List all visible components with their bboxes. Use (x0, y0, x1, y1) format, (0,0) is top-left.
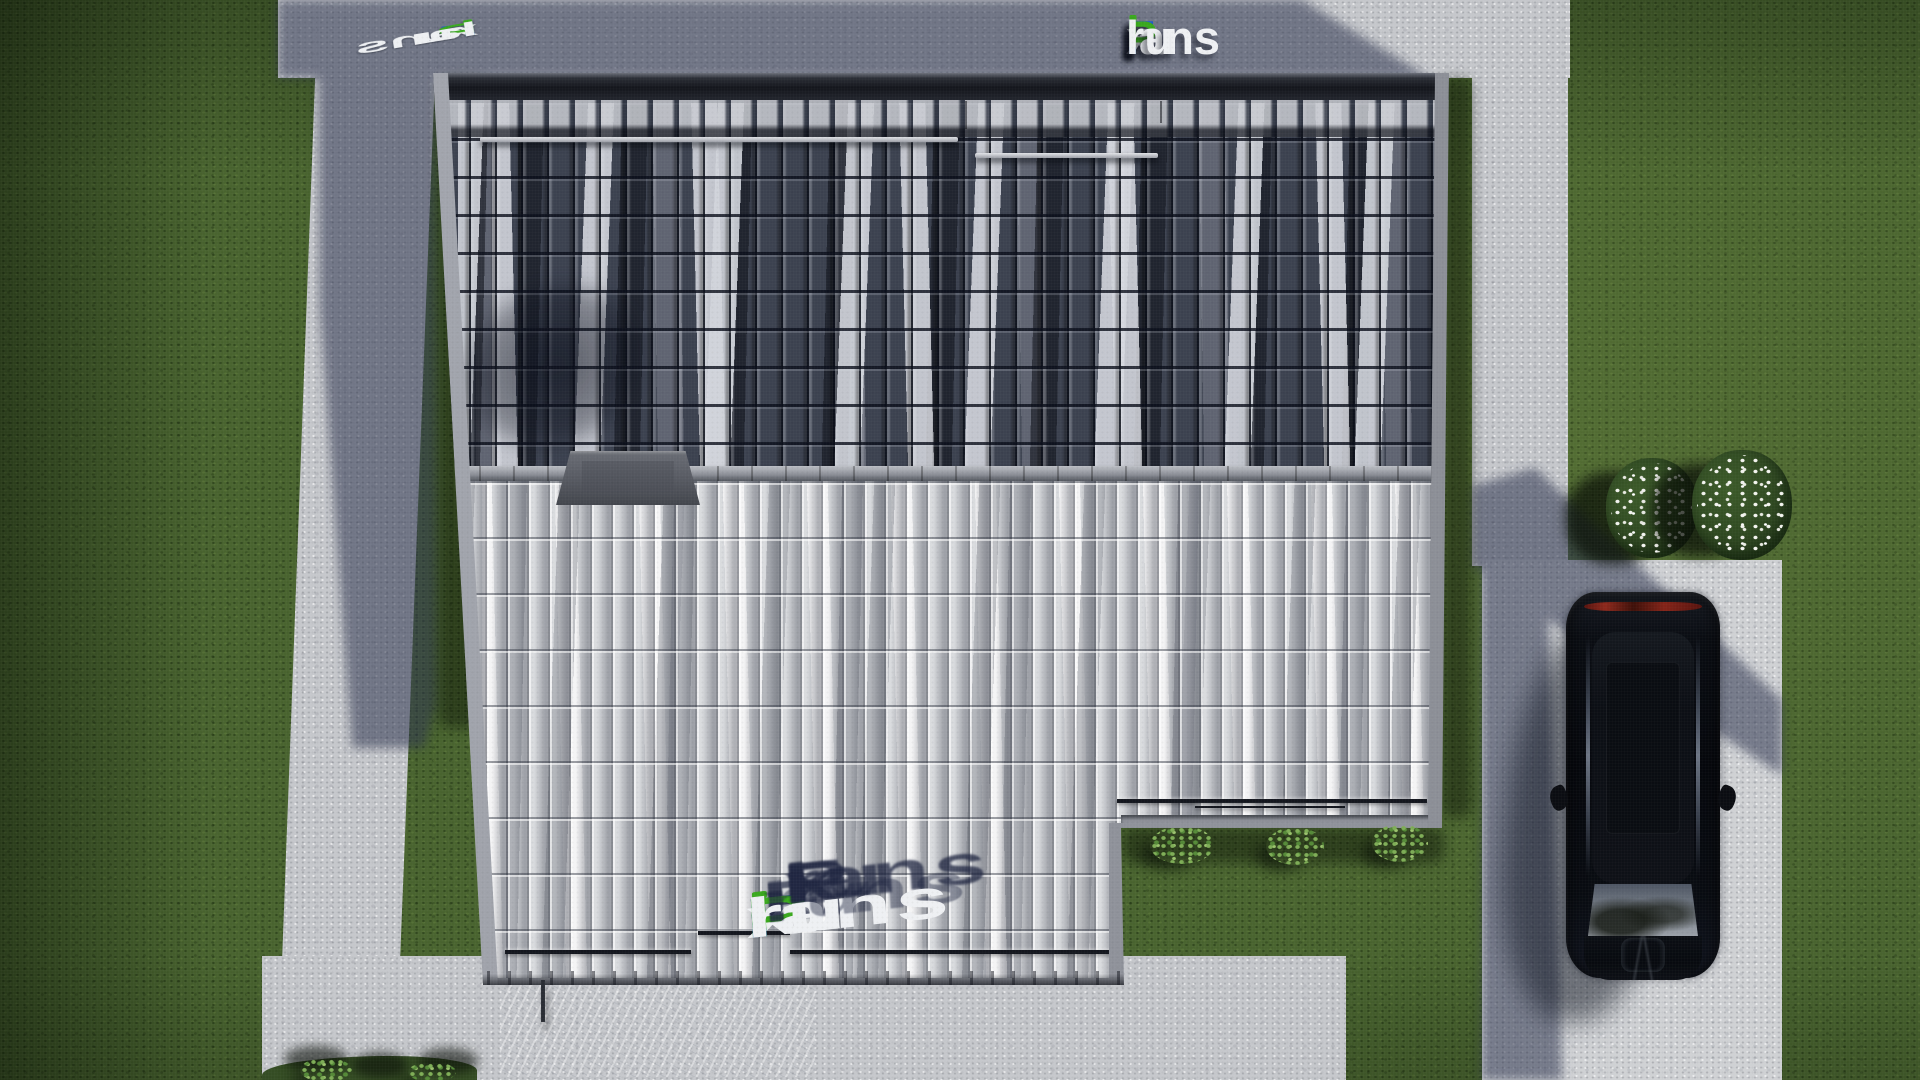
brand-letter: ru (1126, 14, 1173, 61)
downspout (541, 980, 545, 1022)
car-hood (1584, 936, 1702, 980)
top-eave-fascia (433, 73, 1449, 100)
flower-bush (1692, 450, 1792, 560)
aerial-render-scene: FıxPlans.ru FıxPlans.ru FıxPlans.ru (0, 0, 1920, 1080)
roof-seam (965, 101, 967, 129)
dark-roof-ridge-course (445, 100, 1437, 137)
windshield-reflection (1588, 884, 1698, 936)
sunroof (1606, 662, 1680, 834)
car-roof-glass (1592, 632, 1694, 884)
hood-scoop (1621, 938, 1665, 972)
chimney-cap (556, 451, 700, 505)
snow-guard (505, 950, 691, 954)
bush-flowers (1697, 455, 1787, 555)
brand-letter: ru (744, 881, 851, 948)
car-body (1566, 592, 1720, 978)
shrub (1150, 826, 1214, 864)
shrub-shadow (352, 1052, 408, 1078)
bottom-eave-edge (445, 971, 1124, 985)
black-suv (1552, 586, 1734, 984)
snow-guard (790, 950, 1112, 954)
shrub (1372, 824, 1428, 862)
shrub (300, 1058, 352, 1080)
shrub (1266, 827, 1324, 865)
roof-seam (1160, 101, 1162, 123)
snow-guard (1117, 799, 1427, 803)
body-reflection (1696, 636, 1700, 876)
snow-guard (480, 137, 958, 142)
body-reflection (1586, 636, 1590, 876)
shrub (408, 1062, 456, 1080)
snow-guard (1195, 806, 1345, 808)
taillight-bar (1584, 602, 1702, 611)
snow-guard (975, 153, 1158, 158)
